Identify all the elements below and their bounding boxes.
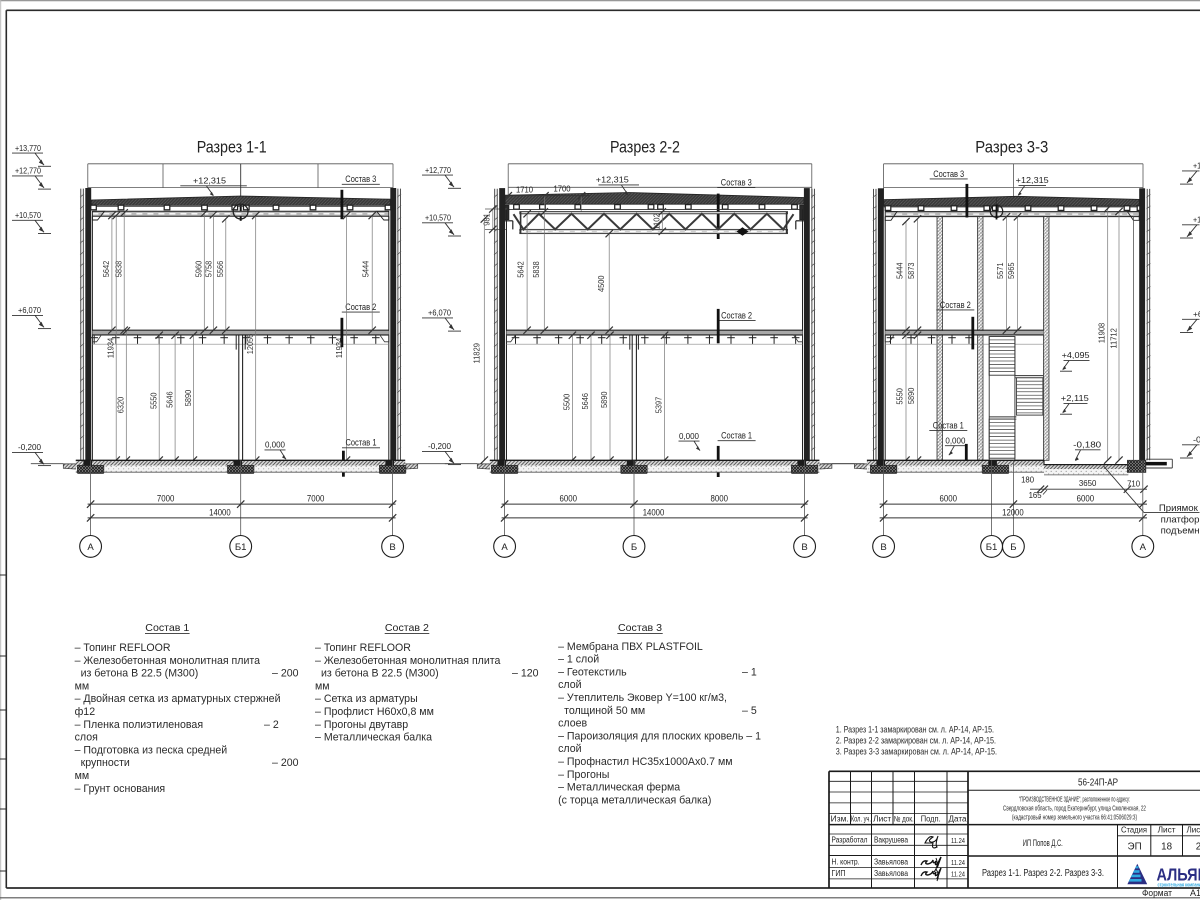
svg-text:мм: мм bbox=[75, 680, 90, 692]
svg-text:из бетона В 22.5 (М300): из бетона В 22.5 (М300) bbox=[321, 668, 439, 680]
svg-text:+12,315: +12,315 bbox=[1016, 175, 1049, 185]
svg-text:-0,200: -0,200 bbox=[18, 442, 41, 452]
svg-text:11934: 11934 bbox=[335, 337, 344, 358]
svg-text:Подп.: Подп. bbox=[921, 815, 941, 824]
svg-text:+10,570: +10,570 bbox=[425, 213, 451, 223]
svg-text:слой: слой bbox=[558, 679, 581, 691]
svg-text:– Подготовка из песка средней: – Подготовка из песка средней bbox=[75, 744, 228, 756]
svg-text:5758: 5758 bbox=[204, 260, 213, 277]
svg-text:Лист: Лист bbox=[1158, 825, 1176, 835]
svg-text:Разрез 1-1: Разрез 1-1 bbox=[197, 139, 267, 157]
svg-text:Дата: Дата bbox=[949, 815, 968, 824]
svg-text:14000: 14000 bbox=[209, 508, 231, 518]
svg-text:+12,315: +12,315 bbox=[193, 176, 226, 186]
svg-text:А: А bbox=[1140, 542, 1147, 553]
svg-text:11829: 11829 bbox=[473, 343, 482, 364]
svg-text:Б1: Б1 bbox=[986, 542, 998, 553]
svg-text:крупности: крупности bbox=[81, 757, 130, 769]
svg-text:Состав 2: Состав 2 bbox=[385, 623, 429, 634]
svg-text:5397: 5397 bbox=[654, 396, 663, 413]
svg-text:5550: 5550 bbox=[895, 388, 904, 405]
svg-text:В: В bbox=[389, 542, 395, 553]
svg-text:Изм.: Изм. bbox=[831, 815, 849, 824]
svg-text:5500: 5500 bbox=[562, 393, 571, 410]
svg-text:Листов: Листов bbox=[1187, 825, 1200, 835]
svg-text:– 120: – 120 bbox=[512, 668, 539, 680]
svg-text:+13,770: +13,770 bbox=[15, 143, 41, 153]
svg-text:№ док.: № док. bbox=[894, 815, 914, 824]
svg-text:Состав 2: Состав 2 bbox=[940, 300, 971, 310]
svg-text:Состав 3: Состав 3 bbox=[721, 178, 752, 188]
svg-text:Состав 3: Состав 3 bbox=[618, 623, 662, 634]
svg-text:18: 18 bbox=[1161, 842, 1172, 853]
svg-text:слоев: слоев bbox=[558, 718, 587, 730]
svg-text:– 5: – 5 bbox=[742, 705, 757, 717]
svg-text:– Прогоны: – Прогоны bbox=[558, 769, 609, 781]
svg-text:6000: 6000 bbox=[940, 493, 958, 503]
svg-text:8000: 8000 bbox=[711, 493, 729, 503]
svg-text:+2,115: +2,115 bbox=[1061, 393, 1089, 403]
svg-text:Состав 1: Состав 1 bbox=[145, 623, 189, 634]
svg-text:11934: 11934 bbox=[106, 337, 115, 358]
svg-text:+12,770: +12,770 bbox=[425, 165, 451, 175]
svg-text:Состав 1: Состав 1 bbox=[721, 431, 752, 441]
svg-text:Состав 2: Состав 2 bbox=[345, 302, 376, 312]
svg-text:12000: 12000 bbox=[1002, 508, 1024, 518]
svg-text:ЭП: ЭП bbox=[1128, 842, 1142, 853]
svg-text:Состав 3: Состав 3 bbox=[345, 174, 376, 184]
svg-text:В: В bbox=[801, 542, 807, 553]
svg-text:+12,770: +12,770 bbox=[15, 166, 41, 176]
svg-text:– 2: – 2 bbox=[264, 719, 279, 731]
svg-text:(с торца металлическая балка): (с торца металлическая балка) bbox=[558, 794, 711, 806]
svg-text:11.24: 11.24 bbox=[951, 869, 965, 878]
svg-text:0,000: 0,000 bbox=[265, 440, 285, 450]
svg-text:(кадастровый номер земельного: (кадастровый номер земельного участка 66… bbox=[1012, 812, 1137, 821]
svg-text:5646: 5646 bbox=[165, 391, 174, 408]
svg-text:5646: 5646 bbox=[581, 393, 590, 410]
svg-text:56-24П-АР: 56-24П-АР bbox=[1078, 777, 1118, 788]
svg-text:1. Разрез 1-1 замаркирован см.: 1. Разрез 1-1 замаркирован см. л. АР-14,… bbox=[836, 724, 994, 735]
svg-text:-0,180: -0,180 bbox=[1073, 439, 1101, 449]
svg-text:0,000: 0,000 bbox=[945, 435, 965, 445]
svg-text:толщиной 50 мм: толщиной 50 мм bbox=[564, 705, 645, 717]
svg-text:Лист: Лист bbox=[873, 815, 891, 824]
svg-text:5571: 5571 bbox=[996, 262, 1005, 279]
svg-text:+10,570: +10,570 bbox=[15, 210, 41, 220]
svg-text:4500: 4500 bbox=[597, 275, 606, 292]
svg-text:Б: Б bbox=[1010, 542, 1016, 553]
svg-text:Свердловская область, город Ек: Свердловская область, город Екатеринбург… bbox=[1003, 803, 1146, 812]
svg-text:+4,095: +4,095 bbox=[1062, 350, 1090, 360]
svg-text:Состав 1: Состав 1 bbox=[346, 438, 377, 448]
svg-text:5890: 5890 bbox=[600, 391, 609, 408]
svg-text:Формат: Формат bbox=[1142, 888, 1172, 898]
svg-text:"ПРОИЗВОДСТВЕННОЕ ЗДАНИЕ", рас: "ПРОИЗВОДСТВЕННОЕ ЗДАНИЕ", расположенное… bbox=[1019, 794, 1130, 803]
svg-text:Разрез 1-1. Разрез 2-2. Разрез: Разрез 1-1. Разрез 2-2. Разрез 3-3. bbox=[982, 868, 1104, 879]
svg-text:ф12: ф12 bbox=[75, 706, 96, 718]
svg-text:– Геотекстиль: – Геотекстиль bbox=[558, 666, 627, 678]
svg-text:14000: 14000 bbox=[643, 508, 665, 518]
svg-text:подъемни: подъемни bbox=[1161, 526, 1200, 537]
svg-text:165: 165 bbox=[1029, 490, 1042, 500]
svg-text:Состав 3: Состав 3 bbox=[933, 169, 964, 179]
svg-text:ИП Попов Д.С.: ИП Попов Д.С. bbox=[1023, 838, 1063, 848]
svg-text:6000: 6000 bbox=[560, 493, 578, 503]
svg-text:Вакрушева: Вакрушева bbox=[874, 836, 908, 845]
svg-text:5965: 5965 bbox=[1007, 262, 1016, 279]
svg-text:6320: 6320 bbox=[116, 396, 125, 413]
svg-text:– 200: – 200 bbox=[272, 757, 299, 769]
svg-text:5873: 5873 bbox=[907, 262, 916, 279]
svg-text:5642: 5642 bbox=[517, 261, 526, 278]
svg-text:– Железобетонная монолитная п: – Железобетонная монолитная плита bbox=[75, 655, 261, 667]
svg-text:Приямок п: Приямок п bbox=[1159, 503, 1200, 514]
svg-text:+10,570: +10,570 bbox=[1193, 215, 1200, 225]
svg-text:– Мембрана ПВХ PLASTFOIL: – Мембрана ПВХ PLASTFOIL bbox=[558, 641, 703, 653]
svg-text:платформ: платформ bbox=[1161, 514, 1200, 525]
svg-text:5566: 5566 bbox=[216, 260, 225, 277]
svg-text:– Пленка полиэтиленовая: – Пленка полиэтиленовая bbox=[75, 719, 203, 731]
svg-text:5890: 5890 bbox=[907, 387, 916, 404]
svg-text:– Грунт основания: – Грунт основания bbox=[75, 783, 166, 795]
svg-text:– Топинг REFLOOR: – Топинг REFLOOR bbox=[315, 642, 411, 654]
svg-text:– Топинг REFLOOR: – Топинг REFLOOR bbox=[75, 642, 171, 654]
svg-text:+12,315: +12,315 bbox=[596, 174, 629, 184]
svg-text:Состав 1: Состав 1 bbox=[933, 421, 964, 431]
svg-text:– Утеплитель Эковер Y=100 кг/м: – Утеплитель Эковер Y=100 кг/м3, bbox=[558, 692, 727, 704]
svg-text:– Сетка из арматуры: – Сетка из арматуры bbox=[315, 693, 418, 705]
svg-text:Н. контр.: Н. контр. bbox=[832, 858, 860, 867]
svg-text:+6,070: +6,070 bbox=[18, 305, 41, 315]
svg-text:5642: 5642 bbox=[102, 260, 111, 277]
svg-text:5444: 5444 bbox=[362, 260, 371, 277]
svg-text:мм: мм bbox=[315, 680, 330, 692]
svg-text:7000: 7000 bbox=[157, 493, 175, 503]
svg-text:– Железобетонная монолитная п: – Железобетонная монолитная плита bbox=[315, 655, 501, 667]
svg-text:А: А bbox=[87, 542, 94, 553]
svg-text:В: В bbox=[880, 542, 886, 553]
svg-text:Разрез 3-3: Разрез 3-3 bbox=[975, 139, 1048, 157]
svg-text:1700: 1700 bbox=[554, 184, 571, 194]
svg-text:А: А bbox=[501, 542, 508, 553]
svg-text:– 1 слой: – 1 слой bbox=[558, 654, 599, 666]
svg-text:– Двойная сетка из арматурных: – Двойная сетка из арматурных стержней bbox=[75, 693, 281, 705]
svg-text:2: 2 bbox=[1196, 842, 1200, 853]
svg-text:+6,070: +6,070 bbox=[1193, 309, 1200, 319]
svg-text:-0,180: -0,180 bbox=[1193, 435, 1200, 445]
svg-text:0,000: 0,000 bbox=[679, 431, 699, 441]
svg-text:– Профлист Н60х0,8 мм: – Профлист Н60х0,8 мм bbox=[315, 706, 434, 718]
svg-text:– Металлическая балка: – Металлическая балка bbox=[315, 732, 432, 744]
svg-text:710: 710 bbox=[1127, 478, 1140, 488]
svg-text:Стадия: Стадия bbox=[1121, 825, 1147, 835]
svg-text:3. Разрез 3-3 замаркирован см.: 3. Разрез 3-3 замаркирован см. л. АР-14,… bbox=[836, 747, 997, 758]
svg-text:– Металлическая ферма: – Металлическая ферма bbox=[558, 782, 680, 794]
svg-text:Разрез 2-2: Разрез 2-2 bbox=[610, 139, 680, 157]
svg-text:ГИП: ГИП bbox=[832, 869, 846, 878]
svg-text:слой: слой bbox=[558, 743, 581, 755]
svg-text:Б1: Б1 bbox=[235, 542, 247, 553]
svg-text:из бетона В 22.5 (М300): из бетона В 22.5 (М300) bbox=[81, 668, 199, 680]
svg-text:Б: Б bbox=[631, 542, 637, 553]
svg-text:7000: 7000 bbox=[307, 493, 325, 503]
svg-text:5444: 5444 bbox=[895, 262, 904, 279]
svg-text:1710: 1710 bbox=[516, 184, 533, 194]
svg-text:1102: 1102 bbox=[652, 213, 661, 230]
svg-text:5838: 5838 bbox=[532, 261, 541, 278]
svg-text:Состав 2: Состав 2 bbox=[721, 311, 752, 321]
svg-text:3650: 3650 bbox=[1079, 478, 1097, 488]
svg-text:-0,200: -0,200 bbox=[428, 441, 451, 451]
svg-text:А1: А1 bbox=[1190, 888, 1200, 898]
svg-text:Кол. уч.: Кол. уч. bbox=[851, 815, 871, 824]
svg-text:– 1: – 1 bbox=[742, 666, 757, 678]
svg-text:5550: 5550 bbox=[149, 392, 158, 409]
svg-text:5890: 5890 bbox=[184, 389, 193, 406]
svg-text:Завьялова: Завьялова bbox=[874, 869, 908, 878]
svg-text:Разработал: Разработал bbox=[832, 836, 868, 845]
svg-text:180: 180 bbox=[1021, 474, 1034, 484]
svg-text:11712: 11712 bbox=[1109, 328, 1118, 349]
svg-text:– Пароизоляция для плоских кро: – Пароизоляция для плоских кровель – 1 bbox=[558, 730, 761, 742]
svg-text:Завьялова: Завьялова bbox=[874, 858, 908, 867]
svg-text:11908: 11908 bbox=[1098, 322, 1107, 343]
svg-text:– Прогоны двутавр: – Прогоны двутавр bbox=[315, 719, 408, 731]
svg-text:11.24: 11.24 bbox=[951, 858, 965, 867]
svg-text:2. Разрез 2-2 замаркирован см.: 2. Разрез 2-2 замаркирован см. л. АР-14,… bbox=[836, 736, 996, 747]
svg-text:– Профнастил НС35х1000Ах0.7 мм: – Профнастил НС35х1000Ах0.7 мм bbox=[558, 756, 732, 768]
svg-text:– 200: – 200 bbox=[272, 668, 299, 680]
svg-text:5960: 5960 bbox=[194, 260, 203, 277]
svg-text:6000: 6000 bbox=[1077, 493, 1095, 503]
svg-text:слоя: слоя bbox=[75, 732, 98, 744]
svg-text:12056: 12056 bbox=[246, 333, 255, 354]
svg-text:+6,070: +6,070 bbox=[428, 308, 451, 318]
svg-text:мм: мм bbox=[75, 770, 90, 782]
svg-text:11.24: 11.24 bbox=[951, 836, 965, 845]
svg-text:+12,770: +12,770 bbox=[1193, 161, 1200, 171]
